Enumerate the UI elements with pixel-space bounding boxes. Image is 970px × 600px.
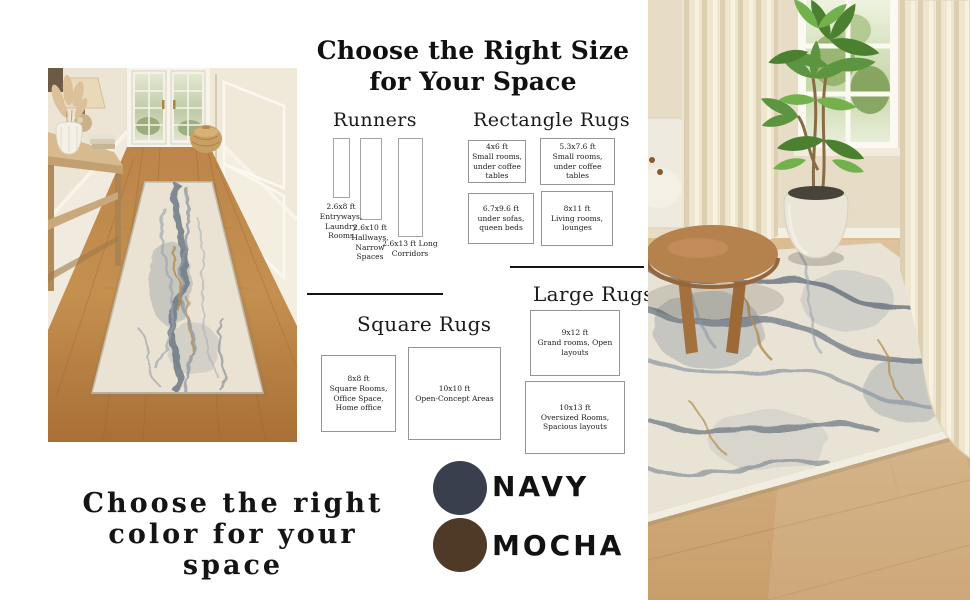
runner-shape-2-6x8	[333, 138, 350, 198]
rect-use-4: Living rooms, lounges	[544, 214, 610, 234]
rect-rug-box-6-7x9-6: 6.7x9.6 ft under sofas, queen beds	[468, 193, 534, 244]
square-rug-box-10x10: 10x10 ft Open-Concept Areas	[408, 347, 501, 440]
navy-swatch-label: NAVY	[492, 470, 589, 503]
color-guide-title-line3: space	[56, 551, 410, 582]
large-rug-box-9x12: 9x12 ft Grand rooms, Open layouts	[530, 310, 620, 376]
rect-use-1: Small rooms, under coffee tables	[471, 152, 523, 181]
navy-swatch	[433, 461, 487, 515]
divider-large-rugs	[510, 266, 644, 268]
rug-size-color-infographic: Choose the Right Size for Your Space Run…	[0, 0, 970, 600]
square-rugs-heading: Square Rugs	[357, 312, 491, 336]
square-size-2: 10x10 ft	[439, 384, 471, 394]
mocha-swatch-label: MOCHA	[492, 529, 624, 562]
size-guide-title: Choose the Right Size for Your Space	[295, 36, 651, 97]
size-guide-title-line1: Choose the Right Size	[295, 36, 651, 67]
large-size-2: 10x13 ft	[559, 403, 591, 413]
color-guide-title: Choose the right color for your space	[56, 489, 410, 581]
rect-size-4: 8x11 ft	[564, 204, 591, 214]
rect-size-1: 4x6 ft	[486, 142, 508, 152]
rect-size-3: 6.7x9.6 ft	[483, 204, 519, 214]
rect-rug-box-4x6: 4x6 ft Small rooms, under coffee tables	[468, 140, 526, 183]
large-rugs-heading: Large Rugs	[533, 282, 654, 306]
color-guide-title-line2: color for your	[56, 520, 410, 551]
square-size-1: 8x8 ft	[348, 374, 370, 384]
woven-pouf	[190, 125, 222, 153]
square-use-1: Square Rooms, Office Space, Home office	[324, 384, 393, 413]
large-size-1: 9x12 ft	[562, 328, 589, 338]
runner-size-2: 2.6x10 ft	[353, 223, 387, 232]
divider-square-rugs	[307, 293, 443, 295]
living-room-rug-photo	[648, 0, 970, 600]
rectangle-rugs-heading: Rectangle Rugs	[473, 109, 630, 131]
rect-size-2: 5.3x7.6 ft	[559, 142, 595, 152]
hallway-runner-photo	[48, 68, 297, 442]
rect-rug-box-8x11: 8x11 ft Living rooms, lounges	[541, 191, 613, 246]
runner-size-3: 2.6x13 ft	[382, 239, 416, 248]
large-use-1: Grand rooms, Open layouts	[533, 338, 617, 358]
rect-rug-box-5-3x7-6: 5.3x7.6 ft Small rooms, under coffee tab…	[540, 138, 615, 185]
square-use-2: Open-Concept Areas	[415, 394, 493, 404]
size-guide-title-line2: for Your Space	[295, 67, 651, 98]
color-guide-title-line1: Choose the right	[56, 489, 410, 520]
mocha-swatch	[433, 518, 487, 572]
rect-use-2: Small rooms, under coffee tables	[543, 152, 612, 181]
stacked-books	[88, 134, 115, 149]
runners-heading: Runners	[333, 109, 417, 131]
runner-size-1: 2.6x8 ft	[326, 202, 355, 211]
large-use-2: Oversized Rooms, Spacious layouts	[528, 413, 622, 433]
square-rug-box-8x8: 8x8 ft Square Rooms, Office Space, Home …	[321, 355, 396, 432]
runner-label-3: 2.6x13 ft Long Corridors	[382, 239, 438, 259]
large-rug-box-10x13: 10x13 ft Oversized Rooms, Spacious layou…	[525, 381, 625, 454]
rect-use-3: under sofas, queen beds	[471, 214, 531, 234]
runner-shape-2-6x13	[398, 138, 423, 237]
